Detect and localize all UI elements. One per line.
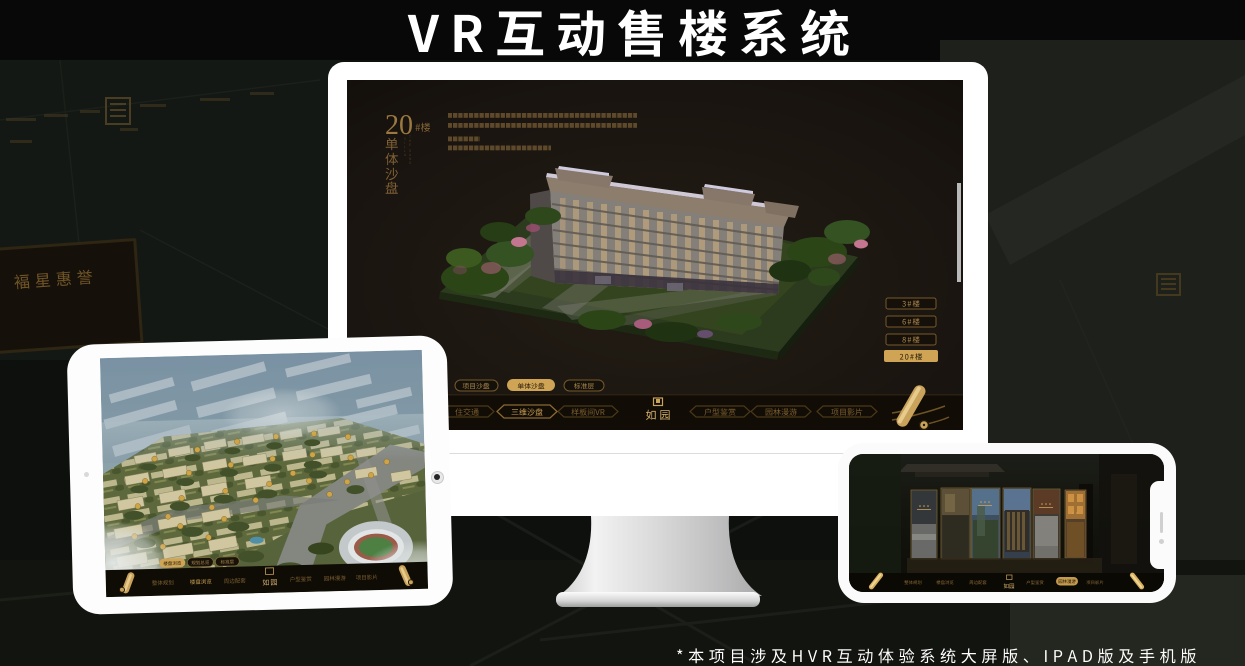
svg-text:E: E [409,143,411,147]
